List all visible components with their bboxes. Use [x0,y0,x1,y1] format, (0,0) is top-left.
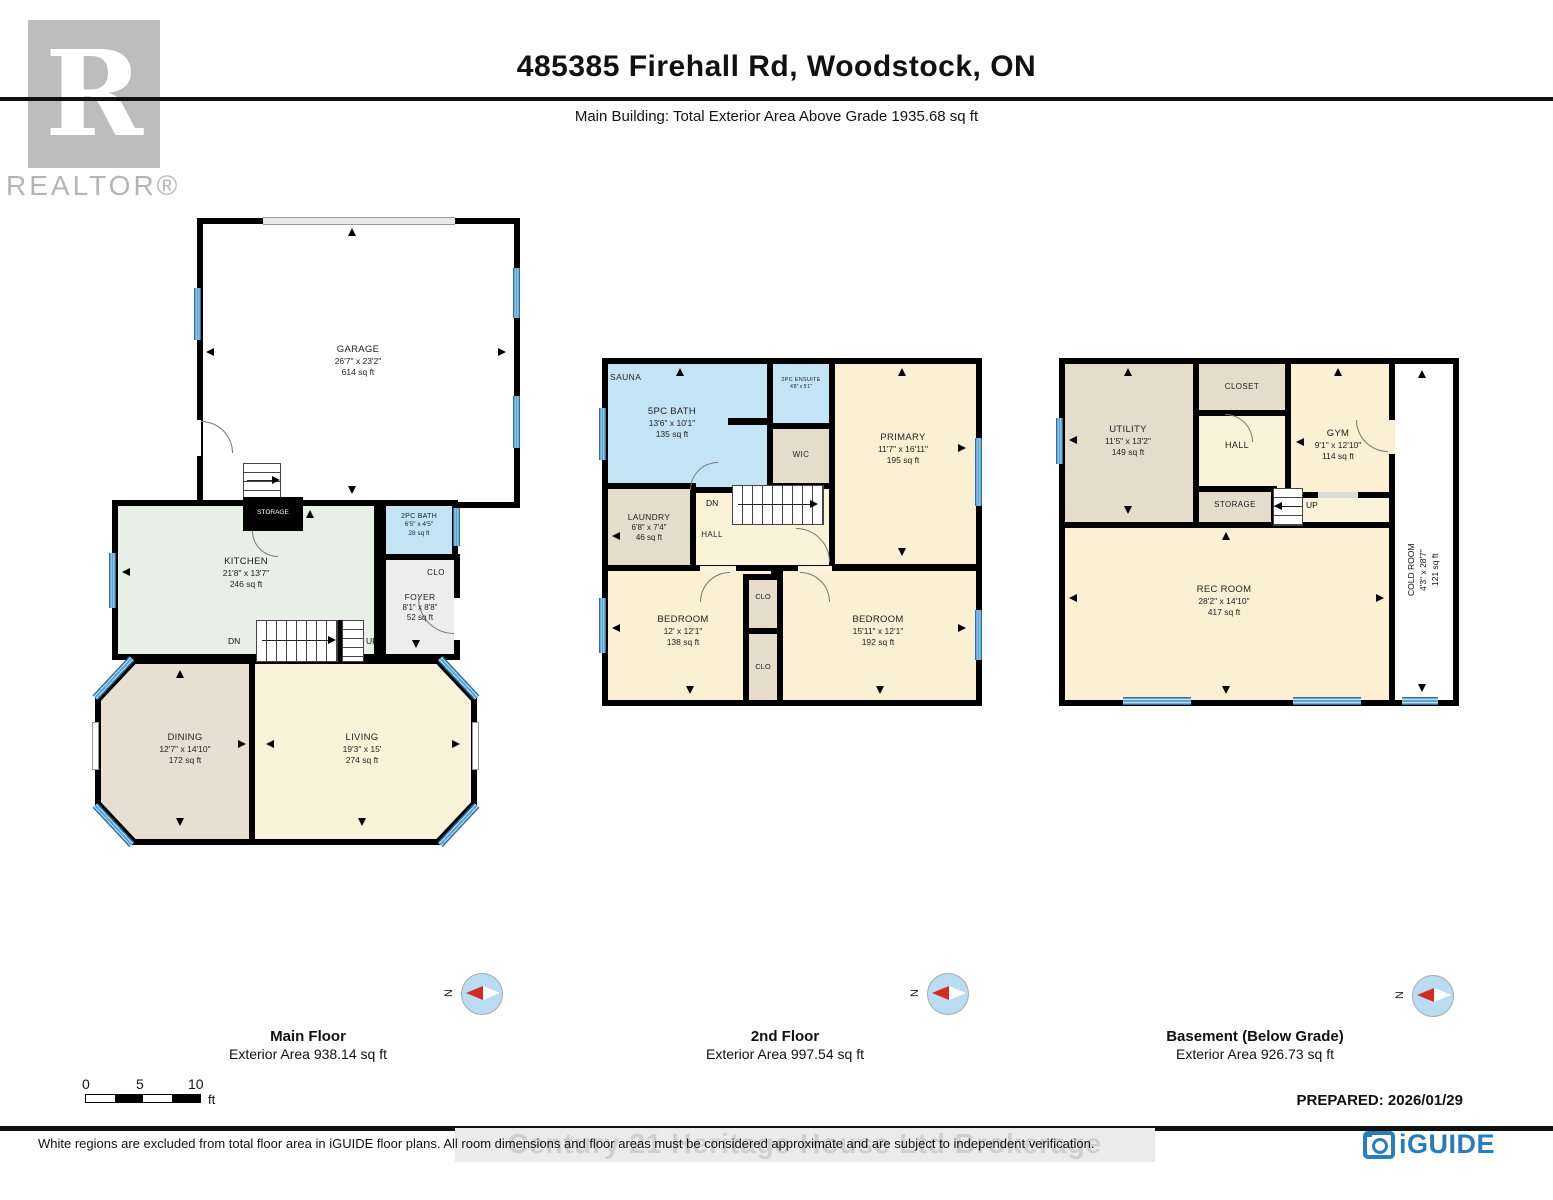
dim-arrow [676,368,684,376]
room-label-5pc-bath: 5PC BATH 13'6" x 10'1" 135 sq ft [602,406,742,440]
window-garage-left [194,288,201,340]
dim-arrow [1124,506,1132,514]
compass-needle-red [1417,988,1434,1002]
compass-main: N [443,973,503,1019]
window-dining-left [92,722,99,770]
compass-needle-white [949,986,966,1000]
window-kitchen-left [109,553,116,608]
realtor-wordmark: REALTOR® [6,170,180,202]
dim-arrow [612,532,620,540]
dim-arrow [266,740,274,748]
dim-arrow [348,486,356,494]
caption-second-title: 2nd Floor [625,1028,945,1045]
dim-arrow [306,510,314,518]
compass-north-label: N [909,989,921,997]
room-label-garage: GARAGE 26'7" x 23'2" 614 sq ft [288,344,428,378]
room-label-wic: WIC [771,450,831,460]
caption-basement-area: Exterior Area 926.73 sq ft [1095,1046,1415,1062]
dim-arrow [1222,532,1230,540]
dim-arrow [1069,436,1077,444]
page-subtitle: Main Building: Total Exterior Area Above… [0,108,1553,125]
dim-arrow [176,670,184,678]
dim-arrow [612,624,620,632]
prepared-date: PREPARED: 2026/01/29 [1297,1092,1463,1109]
room-label-closet-lower: CLO [743,662,783,672]
caption-main-title: Main Floor [148,1028,468,1045]
scale-tick-10: 10 [188,1076,204,1092]
dim-arrow [412,640,420,648]
room-label-storage-main: STORAGE [243,509,303,517]
compass-needle-white [483,986,500,1000]
room-label-cold: COLD ROOM 4'3" x 28'7" 121 sq ft [1406,475,1440,665]
dim-arrow [898,368,906,376]
dim-arrow [1334,368,1342,376]
scale-segment [172,1095,201,1102]
iguide-wordmark: iGUIDE [1399,1129,1495,1160]
header-rule [0,97,1553,101]
window-living-right [472,722,479,770]
room-label-hall-second: HALL [682,530,742,540]
room-label-foyer: FOYER 8'1" x 8'8" 52 sq ft [360,592,480,624]
room-label-utility: UTILITY 11'5" x 13'2" 149 sq ft [1058,424,1198,458]
dim-arrow [1296,438,1304,446]
dim-arrow [176,818,184,826]
compass-needle-red [932,986,949,1000]
room-label-2pc-bath: 2PC BATH 6'5" x 4'5" 28 sq ft [384,512,454,538]
window-primary-right [975,438,982,506]
footer-disclaimer: White regions are excluded from total fl… [38,1136,1094,1151]
compass-north-label: N [1394,991,1406,999]
realtor-logo: R [28,20,160,168]
stairs-main-dn-label: DN [228,636,240,646]
stairs-second-arrow-line [738,504,812,505]
window-garage-right-1 [513,268,520,318]
compass-basement: N [1394,975,1454,1021]
room-label-kitchen: KITCHEN 21'8" x 13'7" 246 sq ft [176,556,316,590]
scale-tick-5: 5 [136,1076,144,1092]
stairs-second-dn-label: DN [706,498,718,508]
dim-arrow [898,548,906,556]
room-label-bedroom-right: BEDROOM 15'11" x 12'1" 192 sq ft [808,614,948,648]
caption-second-area: Exterior Area 997.54 sq ft [625,1046,945,1062]
stairs-main-arrow-line [262,640,328,641]
dim-arrow [686,686,694,694]
window-rec-bottom-2 [1293,697,1361,705]
room-label-sauna: SAUNA [610,372,670,383]
floor-plan-page: R REALTOR® 485385 Firehall Rd, Woodstock… [0,0,1553,1200]
stairs-second-arrow-head [810,500,818,508]
iguide-logo: iGUIDE [1363,1129,1495,1160]
garage-door [263,217,455,225]
caption-basement-title: Basement (Below Grade) [1095,1028,1415,1045]
dim-arrow [1124,368,1132,376]
iguide-camera-icon [1363,1131,1395,1159]
scale-segment [86,1095,115,1102]
room-label-closet-main: CLO [414,568,458,578]
room-label-closet-basement: CLOSET [1192,382,1292,392]
room-label-closet-upper: CLO [743,592,783,602]
scale-tick-0: 0 [82,1076,90,1092]
window-bath-right [453,508,460,546]
dim-arrow [1418,370,1426,378]
compass-needle-white [1434,988,1451,1002]
window-rec-bottom-1 [1123,697,1191,705]
compass-north-label: N [443,989,455,997]
garage-side-door-opening [194,420,201,456]
compass-second: N [909,973,969,1019]
room-label-2pc-ensuite: 2PC ENSUITE 4'8" x 5'1" [766,377,836,391]
dim-arrow [238,740,246,748]
window-bedroom-left [599,598,606,653]
compass-needle-red [466,986,483,1000]
stairs-main-up [342,620,364,662]
window-cold-bottom [1402,697,1438,705]
dim-arrow [1376,594,1384,602]
dim-arrow [122,568,130,576]
stairs-main-arrow-head [328,636,336,644]
stairs-garage-arrow-line [247,480,273,481]
scale-bar [85,1094,201,1103]
caption-main-area: Exterior Area 938.14 sq ft [148,1046,468,1062]
room-label-rec: REC ROOM 28'2" x 14'10" 417 sq ft [1154,584,1294,618]
window-bedroom-right [975,610,982,660]
scale-segment [115,1095,144,1102]
stairs-main-down [256,620,338,662]
room-label-primary: PRIMARY 11'7" x 16'11" 195 sq ft [833,432,973,466]
dim-arrow [206,348,214,356]
bedroom-left-door-opening [700,566,736,572]
dim-arrow [876,686,884,694]
scale-segment [143,1095,172,1102]
room-label-storage-basement: STORAGE [1193,500,1277,510]
rec-door-opening [1318,492,1358,498]
stairs-main-up-label: UP [366,636,378,646]
bedroom-right-door-opening [798,566,832,572]
dim-arrow [958,444,966,452]
dim-arrow [498,348,506,356]
stairs-basement-up-label: UP [1306,500,1318,510]
dim-arrow [348,228,356,236]
dim-arrow [452,740,460,748]
dim-arrow [958,624,966,632]
room-label-living: LIVING 19'3" x 15' 274 sq ft [292,732,432,766]
dim-arrow [1418,684,1426,692]
stairs-garage-arrow-head [272,476,280,484]
dim-arrow [1222,686,1230,694]
room-label-dining: DINING 12'7" x 14'10" 172 sq ft [115,732,255,766]
room-label-bedroom-left: BEDROOM 12' x 12'1" 138 sq ft [613,614,753,648]
room-label-gym: GYM 9'1" x 12'10" 114 sq ft [1268,428,1408,462]
room-label-hall-basement: HALL [1207,440,1267,452]
page-title: 485385 Firehall Rd, Woodstock, ON [0,50,1553,84]
dim-arrow [358,818,366,826]
scale-unit: ft [208,1092,215,1107]
dim-arrow [1069,594,1077,602]
room-2pc-ensuite [767,358,835,429]
window-garage-right-2 [513,396,520,448]
